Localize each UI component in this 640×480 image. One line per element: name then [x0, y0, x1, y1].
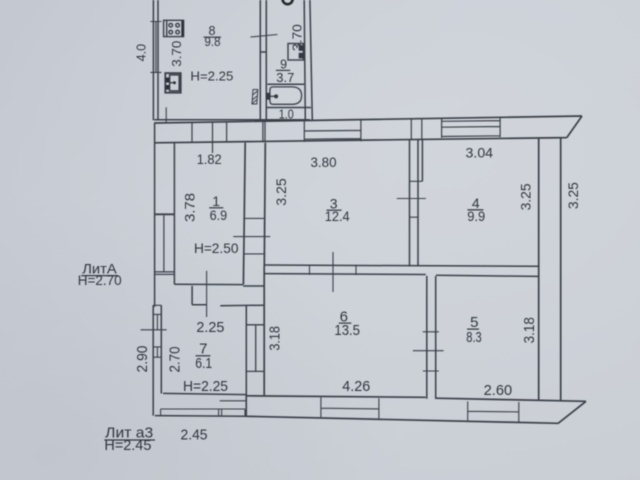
svg-text:2.70: 2.70: [166, 347, 183, 373]
svg-text:Н=2.45: Н=2.45: [104, 437, 151, 454]
svg-text:3.04: 3.04: [466, 144, 494, 160]
svg-text:Н=2.70: Н=2.70: [78, 272, 122, 288]
svg-text:4.26: 4.26: [342, 378, 370, 395]
svg-text:12.4: 12.4: [325, 208, 350, 224]
svg-text:6.1: 6.1: [195, 355, 212, 372]
svg-text:3.25: 3.25: [565, 182, 581, 209]
svg-text:3.70: 3.70: [170, 41, 184, 67]
svg-text:Н=2.50: Н=2.50: [194, 240, 239, 256]
svg-text:8.3: 8.3: [466, 329, 482, 346]
svg-text:9: 9: [280, 58, 287, 72]
svg-text:3.78: 3.78: [182, 193, 198, 222]
svg-text:Н=2.25: Н=2.25: [190, 69, 233, 83]
svg-text:3.70: 3.70: [291, 24, 305, 51]
svg-text:2.60: 2.60: [484, 382, 513, 399]
svg-text:3.25: 3.25: [273, 178, 289, 206]
svg-text:3.25: 3.25: [518, 183, 534, 210]
svg-text:3.80: 3.80: [311, 154, 337, 170]
svg-text:3.18: 3.18: [521, 317, 538, 343]
svg-text:9.8: 9.8: [205, 35, 221, 49]
svg-text:1.0: 1.0: [279, 107, 294, 121]
svg-text:2.90: 2.90: [134, 346, 151, 373]
svg-text:1.82: 1.82: [197, 151, 222, 167]
svg-text:6.9: 6.9: [210, 207, 228, 223]
svg-text:3.7: 3.7: [276, 71, 294, 85]
svg-text:Н=2.25: Н=2.25: [183, 378, 228, 395]
svg-text:4.0: 4.0: [135, 44, 149, 62]
svg-text:2.45: 2.45: [181, 427, 208, 444]
svg-text:9.9: 9.9: [467, 208, 485, 224]
svg-text:3.18: 3.18: [266, 326, 283, 351]
svg-text:13.5: 13.5: [334, 322, 360, 339]
svg-text:2.25: 2.25: [196, 319, 224, 336]
